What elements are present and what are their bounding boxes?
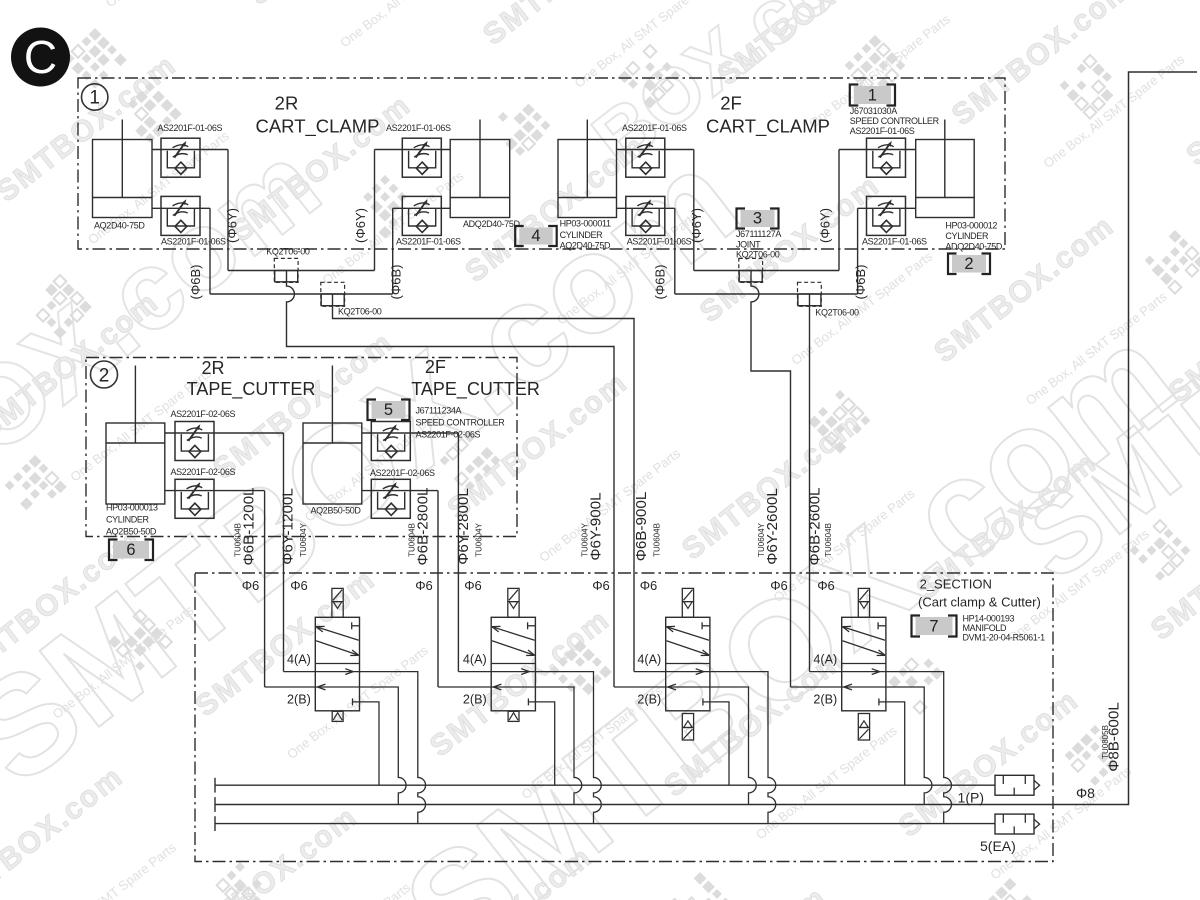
- svg-text:TU0604Y: TU0604Y: [581, 522, 590, 556]
- svg-text:CYLINDER: CYLINDER: [945, 231, 989, 241]
- svg-text:2_SECTION: 2_SECTION: [920, 577, 992, 592]
- svg-text:Φ6: Φ6: [640, 578, 658, 593]
- svg-text:2(B): 2(B): [287, 693, 311, 707]
- svg-text:J67031030A: J67031030A: [850, 106, 897, 116]
- svg-text:AS2201F-01-06S: AS2201F-01-06S: [627, 237, 692, 247]
- svg-text:HP14-000193: HP14-000193: [963, 614, 1015, 624]
- svg-text:Φ6: Φ6: [770, 578, 788, 593]
- svg-text:TU0604B: TU0604B: [234, 523, 243, 557]
- svg-text:Φ6: Φ6: [242, 578, 260, 593]
- svg-text:(Φ6Y): (Φ6Y): [353, 208, 368, 243]
- svg-text:TU0604B: TU0604B: [408, 523, 417, 557]
- svg-text:Φ6Y-2800L: Φ6Y-2800L: [455, 488, 472, 565]
- svg-text:AQ2B50-50D: AQ2B50-50D: [311, 506, 362, 516]
- svg-text:(Φ6B): (Φ6B): [853, 265, 868, 300]
- svg-text:CART_CLAMP: CART_CLAMP: [255, 116, 379, 138]
- svg-text:(Φ6B): (Φ6B): [389, 265, 404, 300]
- svg-text:J67111234A: J67111234A: [416, 406, 462, 416]
- svg-text:5(EA): 5(EA): [980, 838, 1016, 854]
- svg-text:AS2201F-01-06S: AS2201F-01-06S: [396, 237, 461, 247]
- svg-text:AQ2B50-50D: AQ2B50-50D: [106, 527, 157, 537]
- svg-text:Φ6: Φ6: [817, 578, 835, 593]
- svg-text:CYLINDER: CYLINDER: [560, 230, 604, 240]
- svg-text:7: 7: [929, 618, 938, 636]
- svg-text:2(B): 2(B): [463, 693, 487, 707]
- svg-text:TAPE_CUTTER: TAPE_CUTTER: [187, 379, 316, 400]
- svg-text:(Cart clamp & Cutter): (Cart clamp & Cutter): [918, 595, 1041, 610]
- svg-text:TU0604B: TU0604B: [653, 523, 662, 557]
- svg-text:CART_CLAMP: CART_CLAMP: [706, 116, 830, 138]
- svg-text:1: 1: [89, 88, 100, 109]
- svg-text:AS2201F-01-06S: AS2201F-01-06S: [386, 123, 451, 133]
- svg-text:C: C: [24, 31, 57, 83]
- svg-text:1(P): 1(P): [958, 790, 984, 806]
- svg-text:TU0604Y: TU0604Y: [475, 522, 484, 556]
- svg-text:CYLINDER: CYLINDER: [106, 515, 150, 525]
- svg-text:ADQ2D40-75D: ADQ2D40-75D: [945, 242, 1003, 252]
- svg-text:6: 6: [126, 541, 135, 559]
- svg-text:ADQ2D40-75D: ADQ2D40-75D: [463, 219, 521, 229]
- svg-text:TAPE_CUTTER: TAPE_CUTTER: [411, 379, 540, 400]
- svg-text:2F: 2F: [425, 357, 446, 377]
- svg-text:AS2201F-01-06S: AS2201F-01-06S: [622, 123, 687, 133]
- svg-text:Φ6: Φ6: [464, 578, 482, 593]
- svg-text:Φ6Y-2600L: Φ6Y-2600L: [764, 488, 781, 565]
- svg-text:2R: 2R: [201, 358, 224, 378]
- svg-text:2F: 2F: [720, 93, 742, 114]
- svg-text:(Φ6Y): (Φ6Y): [224, 208, 239, 243]
- svg-text:TU0805B: TU0805B: [1101, 725, 1110, 759]
- svg-text:4(A): 4(A): [813, 653, 837, 667]
- svg-text:Φ6Y-1200L: Φ6Y-1200L: [280, 488, 297, 565]
- svg-text:AS2201F-02-06S: AS2201F-02-06S: [370, 468, 435, 478]
- svg-text:4: 4: [531, 227, 540, 245]
- svg-text:Φ6B-900L: Φ6B-900L: [633, 492, 650, 562]
- svg-text:Φ6: Φ6: [415, 578, 433, 593]
- svg-text:Φ6B-1200L: Φ6B-1200L: [241, 488, 258, 566]
- svg-text:HP03-000011: HP03-000011: [560, 219, 611, 229]
- svg-text:Φ6: Φ6: [290, 578, 308, 593]
- svg-text:AS2201F-01-06S: AS2201F-01-06S: [862, 237, 927, 247]
- svg-text:TU0604Y: TU0604Y: [757, 522, 766, 556]
- svg-text:MANIFOLD: MANIFOLD: [963, 623, 1008, 633]
- svg-text:Φ6Y-900L: Φ6Y-900L: [588, 492, 605, 560]
- svg-text:TU0604Y: TU0604Y: [299, 522, 308, 556]
- svg-text:HP03-000012: HP03-000012: [945, 221, 997, 231]
- svg-text:(Φ6B): (Φ6B): [188, 265, 203, 300]
- svg-text:KQ2T06-00: KQ2T06-00: [815, 308, 859, 318]
- svg-text:4(A): 4(A): [463, 653, 487, 667]
- svg-text:2(B): 2(B): [637, 693, 661, 707]
- svg-text:JOINT: JOINT: [736, 240, 761, 250]
- svg-text:4(A): 4(A): [287, 653, 311, 667]
- svg-text:AS2201F-02-06S: AS2201F-02-06S: [171, 409, 236, 419]
- svg-text:KQ2T06-00: KQ2T06-00: [338, 307, 382, 317]
- svg-text:3: 3: [753, 210, 762, 228]
- svg-text:2: 2: [99, 366, 110, 387]
- svg-text:AQ2D40-75D: AQ2D40-75D: [560, 241, 611, 251]
- svg-text:2R: 2R: [275, 93, 299, 114]
- svg-text:(Φ6B): (Φ6B): [652, 265, 667, 300]
- svg-text:Φ6: Φ6: [592, 578, 610, 593]
- svg-text:TU0604B: TU0604B: [824, 523, 833, 557]
- svg-text:SPEED CONTROLLER: SPEED CONTROLLER: [850, 116, 940, 126]
- svg-text:5: 5: [384, 401, 393, 419]
- svg-text:DVM1-20-04-R5061-1: DVM1-20-04-R5061-1: [963, 633, 1046, 643]
- svg-text:KQ2T06-00: KQ2T06-00: [736, 250, 780, 260]
- svg-text:AS2201F-02-06S: AS2201F-02-06S: [171, 467, 236, 477]
- svg-text:2(B): 2(B): [813, 693, 837, 707]
- svg-text:(Φ6Y): (Φ6Y): [689, 208, 704, 243]
- svg-text:2: 2: [964, 255, 973, 273]
- svg-text:AS2201F-01-06S: AS2201F-01-06S: [850, 126, 915, 136]
- svg-text:KQ2T06-00: KQ2T06-00: [266, 247, 310, 257]
- svg-text:1: 1: [868, 87, 877, 105]
- svg-text:Φ6B-2800L: Φ6B-2800L: [415, 488, 432, 566]
- svg-text:HP03-000013: HP03-000013: [106, 503, 158, 513]
- svg-text:AS2201F-01-06S: AS2201F-01-06S: [161, 237, 226, 247]
- svg-text:Φ8: Φ8: [1076, 785, 1095, 801]
- svg-text:SPEED CONTROLLER: SPEED CONTROLLER: [416, 418, 506, 428]
- svg-text:AS2201F-01-06S: AS2201F-01-06S: [158, 123, 223, 133]
- svg-text:Φ6B-2600L: Φ6B-2600L: [807, 488, 824, 566]
- svg-text:J67111127A: J67111127A: [736, 229, 781, 239]
- svg-text:AS2201F-02-06S: AS2201F-02-06S: [416, 430, 481, 440]
- svg-text:AQ2D40-75D: AQ2D40-75D: [94, 221, 145, 231]
- svg-text:(Φ6Y): (Φ6Y): [817, 208, 832, 243]
- svg-text:4(A): 4(A): [637, 653, 661, 667]
